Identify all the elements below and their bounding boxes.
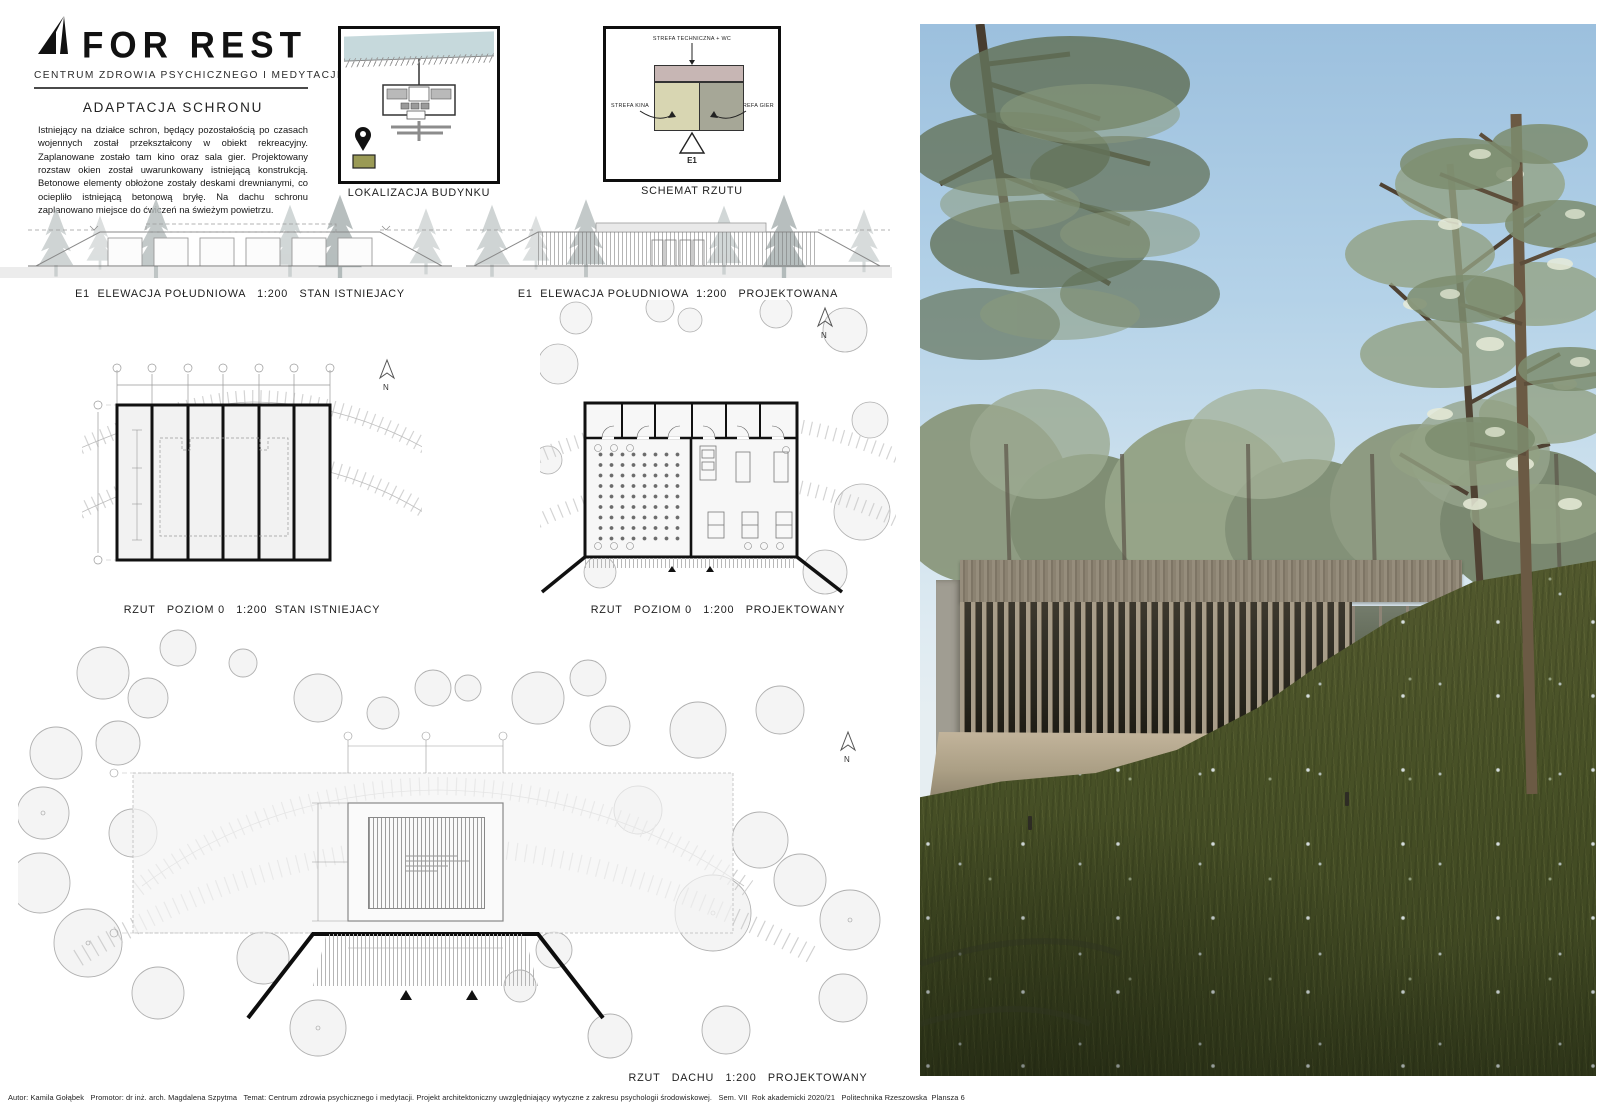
pine-triangle-logo-icon [34, 16, 76, 61]
roof-deck-hatch [368, 817, 485, 909]
plan-existing-caption: RZUT POZIOM 0 1:200 STAN ISTNIEJACY [82, 604, 422, 616]
svg-text:N: N [821, 331, 827, 340]
intro-heading: ADAPTACJA SCHRONU [38, 100, 308, 115]
svg-text:N: N [383, 383, 389, 392]
elevation-existing-drawing: E1 ELEWACJA POŁUDNIOWA 1:200 STAN ISTNIE… [28, 190, 452, 278]
board-footer: Autor: Kamila Gołąbek Promotor: dr inż. … [8, 1093, 903, 1102]
logo-block: FOR REST CENTRUM ZDROWIA PSYCHICZNEGO I … [34, 16, 308, 89]
roof-entry-hatch [313, 934, 538, 986]
plan-existing-drawing: N RZUT POZIOM 0 1:200 STAN ISTNIEJACY [82, 300, 422, 600]
elevation-proposed-caption: E1 ELEWACJA POŁUDNIOWA 1:200 PROJEKTOWAN… [446, 288, 910, 300]
plan-proposed-caption: RZUT POZIOM 0 1:200 PROJEKTOWANY [540, 604, 896, 616]
elevation-proposed-drawing: E1 ELEWACJA POŁUDNIOWA 1:200 PROJEKTOWAN… [466, 190, 890, 278]
elevation-marker-triangle [680, 133, 704, 153]
location-diagram: LOKALIZACJA BUDYNKU [338, 26, 500, 184]
schematic-diagram: STREFA TECHNICZNA + WC STREFA KINA STREF… [603, 26, 781, 182]
presentation-board: FOR REST CENTRUM ZDROWIA PSYCHICZNEGO I … [0, 0, 1600, 1120]
foreground-pine-tree [920, 24, 1596, 1076]
exterior-visualization [920, 24, 1596, 1076]
plan-proposed-drawing: N RZUT POZIOM 0 1:200 PROJEKTOWANY [540, 300, 896, 600]
location-pin-icon [353, 127, 375, 168]
roof-plan-caption: RZUT DACHU 1:200 PROJEKTOWANY [578, 1072, 918, 1084]
cinema-seat-grid [598, 452, 684, 544]
wood-slat-texture [538, 232, 816, 265]
logo-title: FOR REST [82, 29, 307, 62]
roof-plan-drawing: N RZUT DACHU 1:200 PROJEKTOWANY [18, 628, 890, 1064]
svg-text:N: N [844, 755, 850, 764]
elevation-marker-label: E1 [606, 156, 778, 165]
north-arrow-icon: N [841, 732, 855, 764]
elevation-existing-caption: E1 ELEWACJA POŁUDNIOWA 1:200 STAN ISTNIE… [8, 288, 472, 300]
north-arrow-icon: N [380, 360, 394, 392]
